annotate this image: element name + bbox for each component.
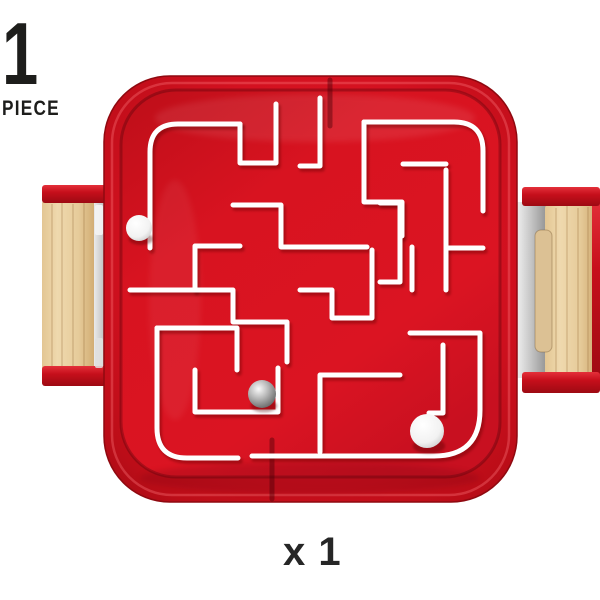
right-wood-clasp [535,230,552,352]
maze-toy-illustration [0,0,600,600]
gloss-sheen-top [155,94,475,142]
piece-count-badge: 1 PIECE [2,14,73,121]
white-ball [410,414,444,448]
left-bottom-flange [42,366,110,386]
white-ball [126,215,152,241]
left-clasp [95,205,103,235]
right-edge-strip [592,196,600,384]
right-top-flange [522,187,600,206]
left-wood-grip [42,200,94,372]
right-bottom-flange [522,372,600,393]
product-image: 1 PIECE [0,0,600,600]
piece-count: 1 [2,14,54,95]
quantity-label: x 1 [283,530,342,575]
steel-ball [248,380,276,408]
left-top-flange [42,185,110,203]
left-clasp-lower [95,338,103,368]
piece-unit-label: PIECE [2,97,60,121]
right-handle [516,187,600,393]
floor-bottom-shade [140,462,480,494]
